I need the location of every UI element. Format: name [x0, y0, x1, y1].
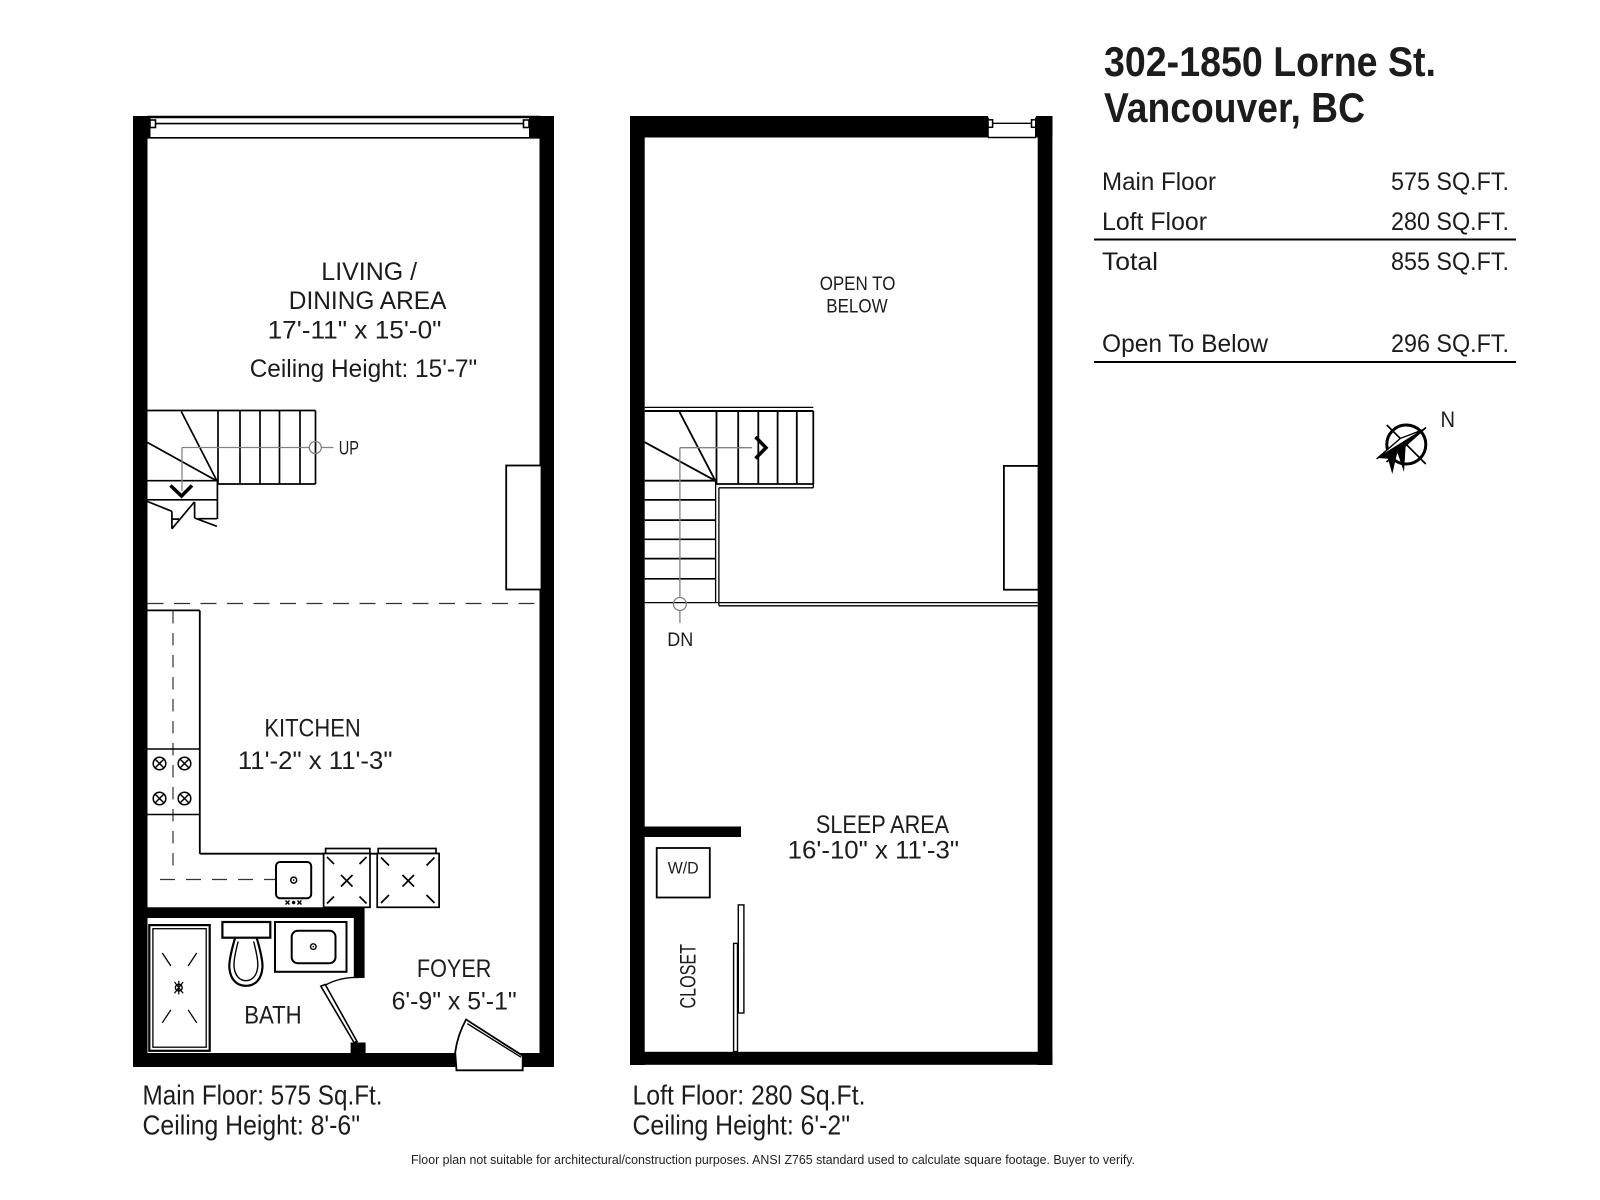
svg-text:855 SQ.FT.: 855 SQ.FT. — [1391, 248, 1509, 276]
svg-text:CLOSET: CLOSET — [675, 944, 700, 1009]
svg-text:KITCHEN: KITCHEN — [264, 715, 360, 743]
svg-text:296 SQ.FT.: 296 SQ.FT. — [1391, 330, 1509, 358]
svg-text:UP: UP — [339, 439, 359, 460]
svg-text:SLEEP AREA: SLEEP AREA — [816, 811, 949, 839]
svg-text:DINING AREA: DINING AREA — [289, 287, 447, 315]
svg-text:Vancouver, BC: Vancouver, BC — [1104, 84, 1365, 131]
svg-text:BELOW: BELOW — [826, 297, 887, 318]
svg-text:Loft Floor: 280 Sq.Ft.: Loft Floor: 280 Sq.Ft. — [633, 1080, 866, 1111]
svg-text:6'-9" x 5'-1": 6'-9" x 5'-1" — [392, 988, 517, 1016]
svg-text:W/D: W/D — [668, 859, 699, 878]
svg-text:BATH: BATH — [244, 1002, 302, 1030]
svg-text:Total: Total — [1102, 248, 1158, 276]
svg-text:11'-2" x 11'-3": 11'-2" x 11'-3" — [238, 747, 393, 775]
svg-text:575 SQ.FT.: 575 SQ.FT. — [1391, 168, 1509, 196]
svg-text:OPEN TO: OPEN TO — [820, 274, 896, 295]
svg-text:Open To Below: Open To Below — [1102, 330, 1269, 358]
svg-text:302-1850 Lorne St.: 302-1850 Lorne St. — [1104, 38, 1436, 85]
svg-text:Loft Floor: Loft Floor — [1102, 208, 1207, 236]
svg-text:LIVING /: LIVING / — [321, 258, 417, 286]
svg-text:16'-10" x 11'-3": 16'-10" x 11'-3" — [788, 837, 959, 865]
svg-text:Floor plan not suitable for ar: Floor plan not suitable for architectura… — [411, 1152, 1135, 1167]
svg-text:FOYER: FOYER — [417, 955, 492, 983]
svg-text:DN: DN — [667, 630, 693, 651]
svg-text:Ceiling Height: 6'-2": Ceiling Height: 6'-2" — [633, 1110, 851, 1141]
svg-text:Ceiling Height: 8'-6": Ceiling Height: 8'-6" — [143, 1110, 361, 1141]
svg-text:Ceiling Height: 15'-7": Ceiling Height: 15'-7" — [250, 355, 478, 383]
svg-text:Main Floor: Main Floor — [1102, 168, 1216, 196]
svg-text:Main Floor: 575 Sq.Ft.: Main Floor: 575 Sq.Ft. — [143, 1080, 383, 1111]
svg-text:17'-11" x 15'-0": 17'-11" x 15'-0" — [268, 317, 442, 345]
svg-text:N: N — [1441, 407, 1456, 432]
svg-text:280 SQ.FT.: 280 SQ.FT. — [1391, 208, 1509, 236]
